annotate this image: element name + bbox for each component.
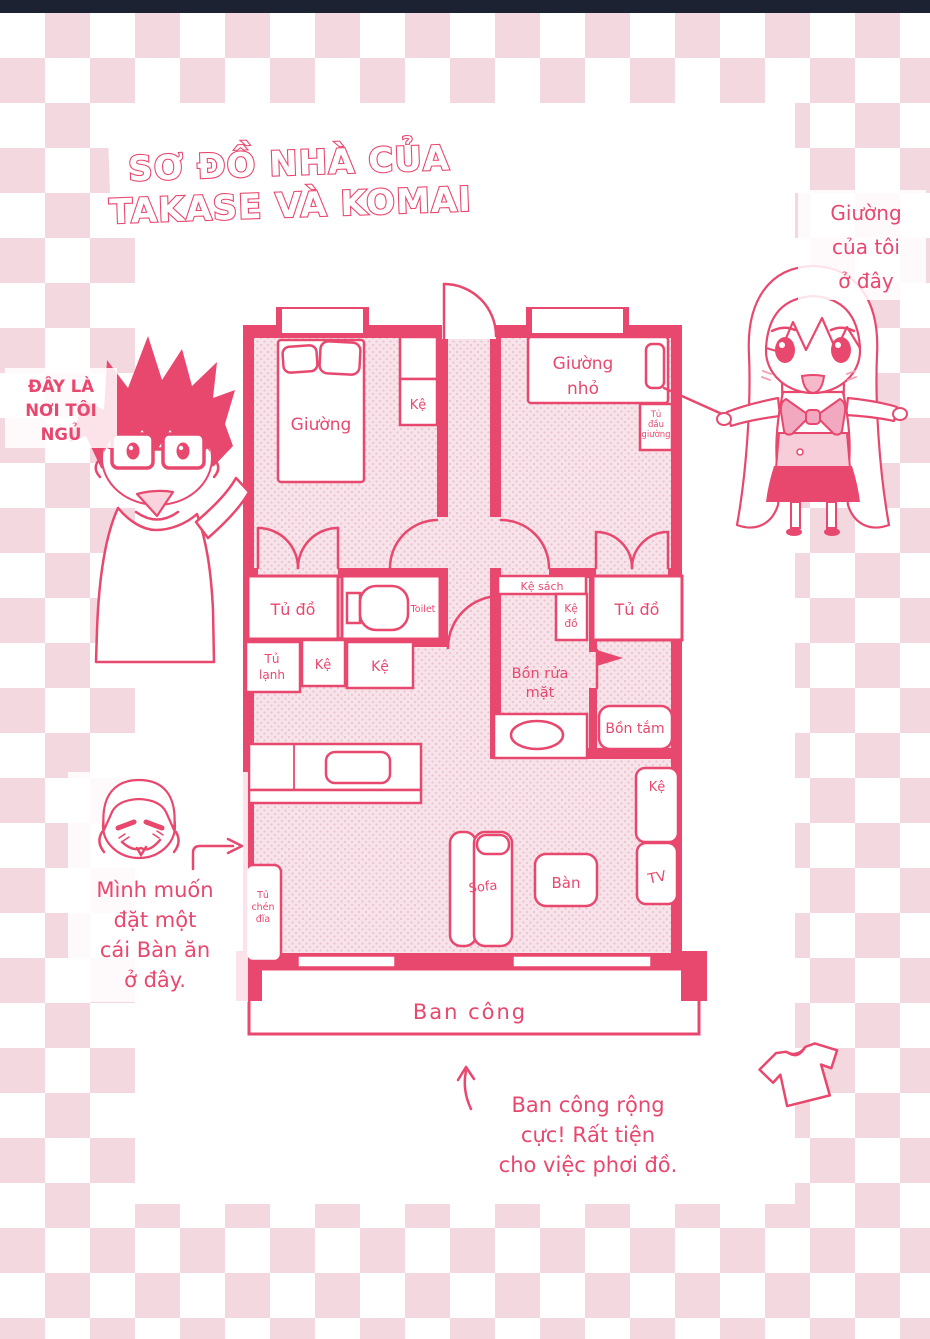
balcony-note-line-3: cho việc phơi đồ. [499, 1153, 678, 1177]
living-shelf: Kệ [636, 768, 678, 842]
top-dark-bar [0, 0, 930, 13]
tv: TV [637, 843, 677, 904]
manga-page-art: SƠ ĐỒ NHÀ CỦA TAKASE VÀ KOMAI Ban công [0, 0, 930, 1339]
bedroom-shelf: Kệ [400, 379, 437, 425]
label-nightstand-2: đầu [648, 419, 664, 430]
balcony-post-right [681, 951, 707, 1001]
label-dish-cabinet-3: đĩa [256, 914, 271, 925]
wall-corridor-right-upper [490, 325, 501, 517]
bathtub: Bồn tắm [599, 706, 672, 749]
label-nightstand-1: Tủ [650, 409, 662, 420]
balcony-arrow [458, 1067, 474, 1109]
label-kitchen-shelf-large: Kệ [371, 659, 389, 675]
label-dish-cabinet-1: Tủ [256, 890, 269, 901]
label-washbasin-2: mặt [526, 685, 555, 701]
toilet-room: Toilet [342, 576, 440, 639]
label-nightstand-3: giường [641, 429, 670, 440]
label-toilet: Toilet [410, 604, 436, 615]
girl-character [717, 266, 907, 536]
girl-note-line-3: ở đây [838, 269, 894, 293]
girl-note-line-2: của tôi [832, 235, 900, 259]
label-closet-left: Tủ đồ [270, 600, 316, 619]
label-bedroom-shelf: Kệ [410, 398, 427, 413]
tshirt-icon [757, 1039, 848, 1111]
window-right [527, 308, 628, 334]
window-left [277, 308, 368, 334]
bookshelf: Kệ sách [498, 576, 586, 594]
closet-left: Tủ đồ [248, 576, 338, 639]
dining-note-line-3: cái Bàn ăn [100, 938, 210, 962]
boy-note: ĐÂY LÀ NƠI TÔI NGỦ [5, 368, 117, 448]
closet-right: Tủ đồ [593, 576, 682, 640]
label-living-shelf: Kệ [649, 780, 666, 795]
balcony-note-text: Ban công rộng cực! Rất tiện cho việc phơ… [499, 1093, 678, 1177]
label-table: Bàn [552, 874, 581, 892]
bath-shelf: Kệ đồ [556, 594, 587, 640]
label-washbasin-1: Bồn rửa [512, 665, 569, 682]
label-balcony: Ban công [413, 1000, 527, 1024]
boy-note-line-2: NƠI TÔI [25, 401, 97, 420]
bed-small: Giường nhỏ [528, 337, 668, 403]
balcony-note-line-2: cực! Rất tiện [521, 1123, 655, 1147]
label-kitchen-shelf-small: Kệ [315, 658, 332, 673]
fridge: Tủ lạnh [246, 642, 300, 692]
bed-main: Giường [278, 340, 364, 482]
label-bed-main: Giường [291, 415, 352, 435]
boy-note-line-1: ĐÂY LÀ [28, 377, 94, 396]
kitchen-shelf-large: Kệ [347, 642, 413, 688]
label-closet-right: Tủ đồ [614, 600, 660, 619]
label-bathtub: Bồn tắm [605, 720, 664, 737]
entrance-door [442, 284, 496, 339]
sliding-door-left [298, 956, 395, 967]
wall-bath-divider-lower [589, 688, 597, 750]
wall-corridor-left-upper [437, 325, 448, 517]
balcony-note-line-1: Ban công rộng [511, 1093, 664, 1117]
girl-note-line-1: Giường [830, 201, 901, 225]
floor-plan: Ban công [236, 284, 722, 1034]
label-bed-small-2: nhỏ [567, 379, 599, 399]
nightstand: Tủ đầu giường [640, 404, 672, 450]
dish-cabinet: Tủ chén đĩa [246, 865, 281, 961]
table: Bàn [535, 854, 597, 906]
dining-note-line-1: Mình muốn [96, 878, 213, 902]
label-fridge-2: lạnh [259, 668, 285, 682]
label-bath-shelf-2: đồ [564, 618, 577, 630]
page-title: SƠ ĐỒ NHÀ CỦA TAKASE VÀ KOMAI [107, 122, 473, 235]
label-dish-cabinet-2: chén [251, 902, 274, 913]
dining-note-line-4: ở đây. [124, 968, 186, 992]
kitchen-shelf-small: Kệ [302, 640, 345, 686]
bedroom-cabinet [400, 337, 437, 379]
label-sofa: Sofa [468, 879, 498, 897]
sliding-door-right [513, 956, 651, 967]
sofa: Sofa [450, 832, 512, 946]
label-bath-shelf-1: Kệ [564, 603, 577, 615]
label-fridge-1: Tủ [264, 652, 280, 666]
boy-note-line-3: NGỦ [41, 423, 82, 444]
kitchen-counter [249, 744, 421, 803]
girl-note: Giường của tôi ở đây [798, 190, 926, 300]
label-bookshelf: Kệ sách [521, 580, 564, 593]
label-bed-small-1: Giường [553, 354, 614, 374]
dining-note-line-2: đặt một [114, 908, 197, 932]
